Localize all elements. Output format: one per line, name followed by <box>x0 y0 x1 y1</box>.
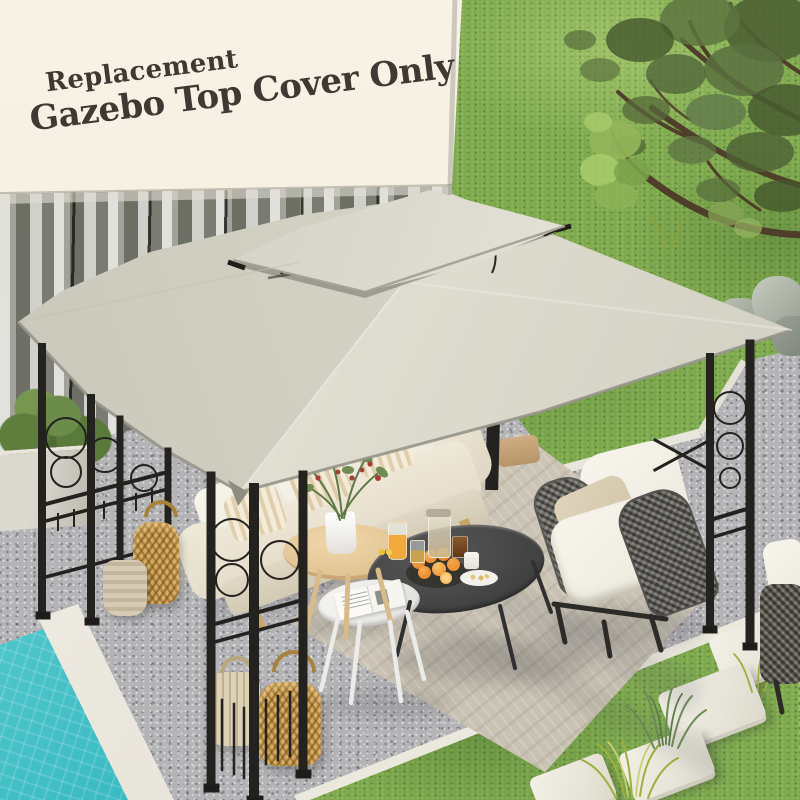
product-photo-scene: Replacement Gazebo Top Cover Only <box>0 0 800 800</box>
right-leg-scrollwork <box>714 392 746 488</box>
beige-ribbed-vase <box>103 560 147 616</box>
white-table-legs <box>321 612 424 703</box>
black-table-legs <box>397 562 551 668</box>
gazebo-right-leg <box>655 344 757 650</box>
wood-table-legs <box>306 570 391 637</box>
gazebo-front-leg <box>204 475 311 800</box>
